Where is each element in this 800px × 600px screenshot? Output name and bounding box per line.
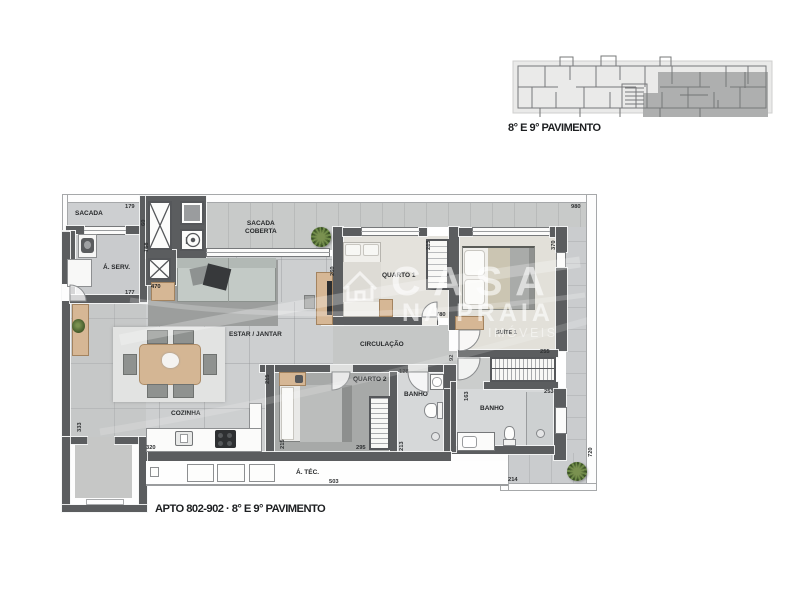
svg-text:CASA: CASA bbox=[391, 258, 557, 304]
svg-text:IMÓVEIS: IMÓVEIS bbox=[488, 325, 558, 340]
svg-text:NA PRAIA: NA PRAIA bbox=[402, 299, 554, 327]
